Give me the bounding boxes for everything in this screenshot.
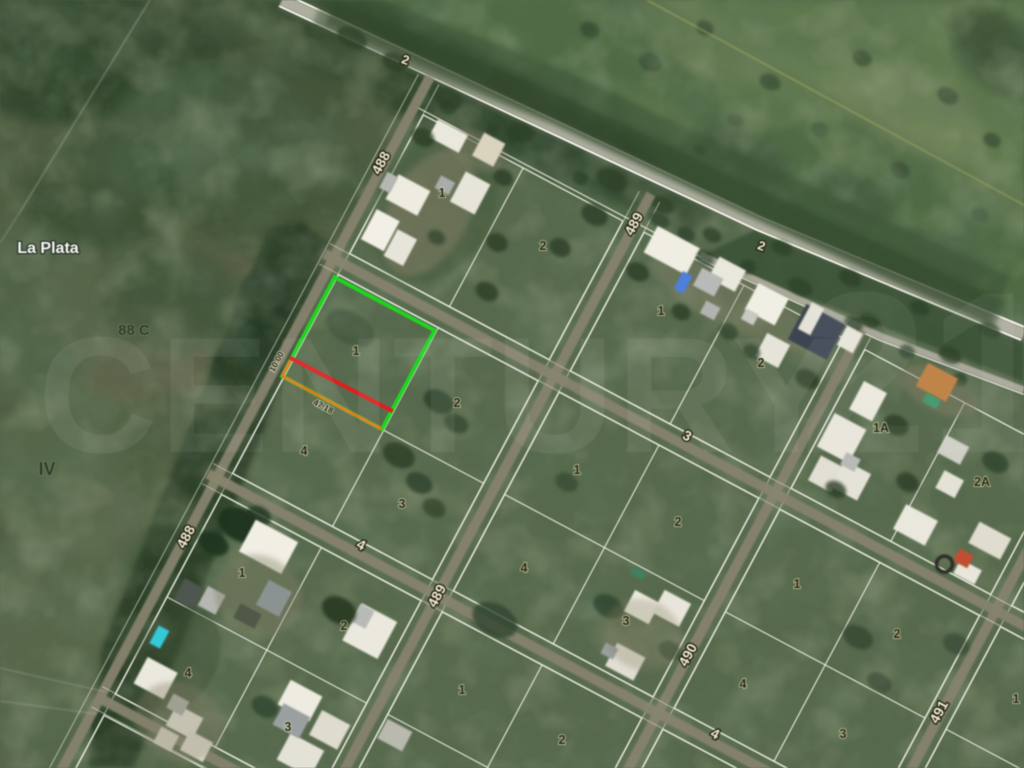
svg-text:4: 4 [521, 561, 528, 575]
svg-text:1A: 1A [873, 421, 889, 435]
svg-text:2A: 2A [974, 475, 990, 489]
svg-text:1: 1 [574, 463, 581, 477]
svg-text:2: 2 [894, 627, 901, 641]
svg-text:IV: IV [38, 459, 55, 479]
svg-text:4: 4 [301, 444, 308, 458]
svg-text:1: 1 [459, 683, 466, 697]
svg-text:1: 1 [1013, 692, 1020, 706]
svg-text:88 C: 88 C [118, 322, 150, 339]
svg-text:2: 2 [675, 515, 682, 529]
svg-text:2: 2 [454, 396, 461, 410]
svg-text:4: 4 [185, 666, 192, 680]
svg-text:3: 3 [840, 727, 847, 741]
svg-text:1: 1 [658, 304, 665, 318]
svg-text:2: 2 [540, 239, 547, 253]
svg-text:3: 3 [399, 497, 406, 511]
svg-text:1: 1 [239, 566, 246, 580]
svg-text:La Plata: La Plata [17, 240, 78, 257]
svg-text:2: 2 [758, 356, 765, 370]
svg-text:CENTURY: CENTURY [38, 303, 843, 487]
svg-text:2: 2 [341, 619, 348, 633]
svg-text:21: 21 [800, 244, 1024, 501]
svg-text:3: 3 [285, 720, 292, 734]
svg-text:3: 3 [623, 614, 630, 628]
svg-text:1: 1 [794, 577, 801, 591]
svg-text:2: 2 [559, 733, 566, 747]
svg-text:1: 1 [439, 186, 446, 200]
svg-text:1: 1 [353, 344, 360, 358]
svg-text:4: 4 [740, 677, 747, 691]
